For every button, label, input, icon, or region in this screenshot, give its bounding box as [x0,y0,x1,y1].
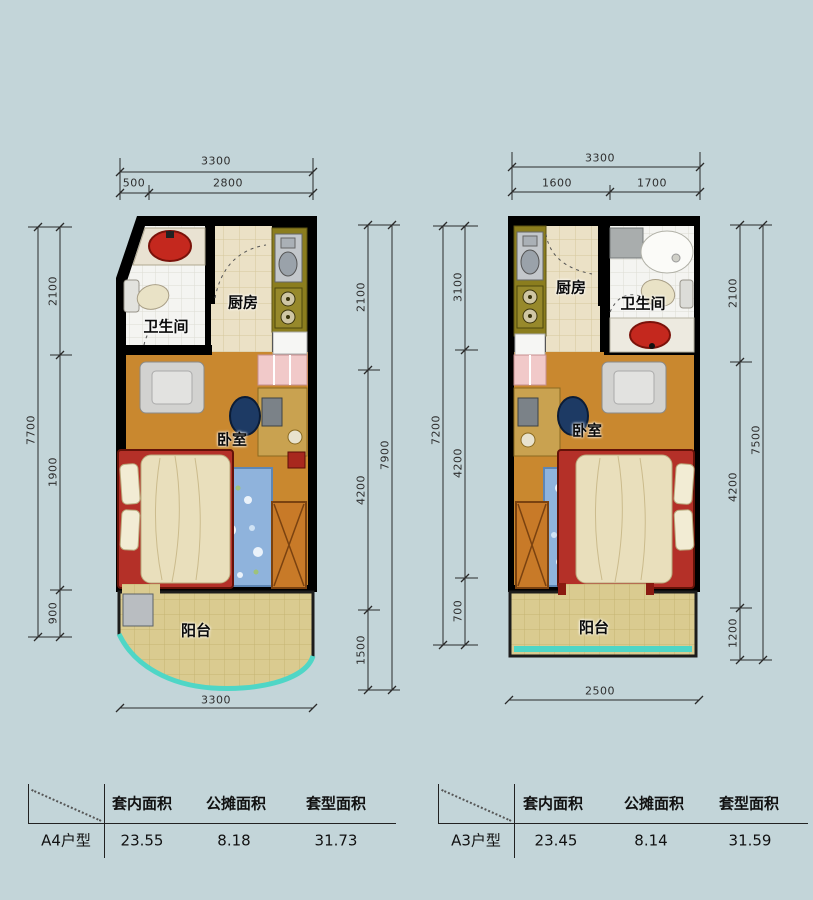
floorplan-canvas: 卫生间 厨房 卧室 阳台 厨房 卫生间 卧室 阳台 3300 500 2800 … [0,0,813,900]
kitchen-floor [211,226,272,352]
balcony-rail [514,646,692,652]
door-icon [123,594,153,626]
table-border [438,784,439,824]
room-label-bedroom-a4: 卧室 [217,433,247,448]
monitor-icon [518,398,538,426]
dim-a3-right-seg2: 4200 [728,472,739,502]
room-label-balcony-a3: 阳台 [579,621,609,636]
shared-area-value: 8.18 [217,834,250,849]
table-border [438,823,808,824]
dim-a3-left-outer: 7200 [431,415,442,445]
table-header-shared-area: 公摊面积 [624,797,684,812]
toilet-tank [124,280,139,312]
dim-a3-right-seg1: 2100 [728,278,739,308]
dim-a4-top-seg1: 500 [123,178,146,189]
room-label-bedroom-a3: 卧室 [572,424,602,439]
toilet-tank [680,280,693,308]
balcony-opening [122,584,160,594]
dim-a3-right-seg3: 1200 [728,618,739,648]
inner-area-value: 23.45 [535,834,578,849]
dim-a4-top-seg2: 2800 [213,178,243,189]
faucet-icon [649,343,655,349]
total-area-value: 31.73 [315,834,358,849]
table-border [28,823,396,824]
dim-a3-top-total: 3300 [585,153,615,164]
partition-wall [205,216,215,304]
table-border [514,784,515,858]
plan-a4 [116,216,317,689]
floorplan-graphics [0,0,813,900]
nightstand-icon [288,452,305,468]
dim-a3-left-seg2: 4200 [453,448,464,478]
dim-a4-right-outer: 7900 [380,440,391,470]
dim-a3-top-seg1: 1600 [542,178,572,189]
table-header-total-area: 套型面积 [719,797,779,812]
inner-area-value: 23.55 [121,834,164,849]
area-table-a3: 套内面积 公摊面积 套型面积 A3户型 23.45 8.14 31.59 [438,784,808,858]
unit-type-label: A4户型 [41,834,91,849]
table-header-inner-area: 套内面积 [112,797,172,812]
shared-area-value: 8.14 [634,834,667,849]
pillow-icon [120,463,141,504]
room-label-balcony-a4: 阳台 [181,624,211,639]
table-border [104,784,105,858]
dim-a4-left-seg3: 900 [48,602,59,625]
dim-a3-left-seg3: 700 [453,600,464,623]
bathtub-icon [641,231,693,273]
bed-icon [558,450,694,588]
cabinet-icon [258,355,307,385]
dim-a4-top-total: 3300 [201,156,231,167]
room-label-kitchen-a3: 厨房 [556,281,586,296]
monitor-icon [262,398,282,426]
room-label-kitchen-a4: 厨房 [228,296,258,311]
dim-a4-left-seg2: 1900 [48,457,59,487]
dim-a3-left-seg1: 3100 [453,272,464,302]
dim-a4-left-seg1: 2100 [48,276,59,306]
dim-a4-right-seg1: 2100 [356,282,367,312]
pillow-icon [674,463,695,504]
pillow-icon [120,510,140,551]
pillow-icon [674,510,694,551]
balcony-opening [566,584,646,594]
room-label-bathroom-a4: 卫生间 [143,320,188,335]
table-diagonal [441,789,511,822]
faucet-icon [166,231,174,238]
table-header-shared-area: 公摊面积 [206,797,266,812]
bed-icon [118,450,233,588]
door-jamb [558,583,566,595]
table-border [28,784,29,824]
dim-a4-right-seg3: 1500 [356,635,367,665]
table-header-total-area: 套型面积 [306,797,366,812]
fridge-icon [273,332,307,354]
dim-a3-right-outer: 7500 [751,425,762,455]
chair-icon [230,397,260,435]
table-diagonal [31,789,101,822]
partition-wall [598,216,608,306]
dim-a3-top-seg2: 1700 [637,178,667,189]
dim-a4-right-seg2: 4200 [356,475,367,505]
total-area-value: 31.59 [729,834,772,849]
table-header-inner-area: 套内面积 [523,797,583,812]
shelf-icon [610,228,643,258]
unit-type-label: A3户型 [451,834,501,849]
dim-a3-bottom-total: 2500 [585,686,615,697]
bathroom-wall [116,345,212,355]
room-label-bathroom-a3: 卫生间 [620,297,665,312]
fridge-icon [515,334,545,356]
door-jamb [646,583,654,595]
plan-a3 [508,216,700,656]
dim-a4-left-outer: 7700 [26,415,37,445]
area-table-a4: 套内面积 公摊面积 套型面积 A4户型 23.55 8.18 31.73 [28,784,396,858]
dim-a4-bottom-total: 3300 [201,695,231,706]
